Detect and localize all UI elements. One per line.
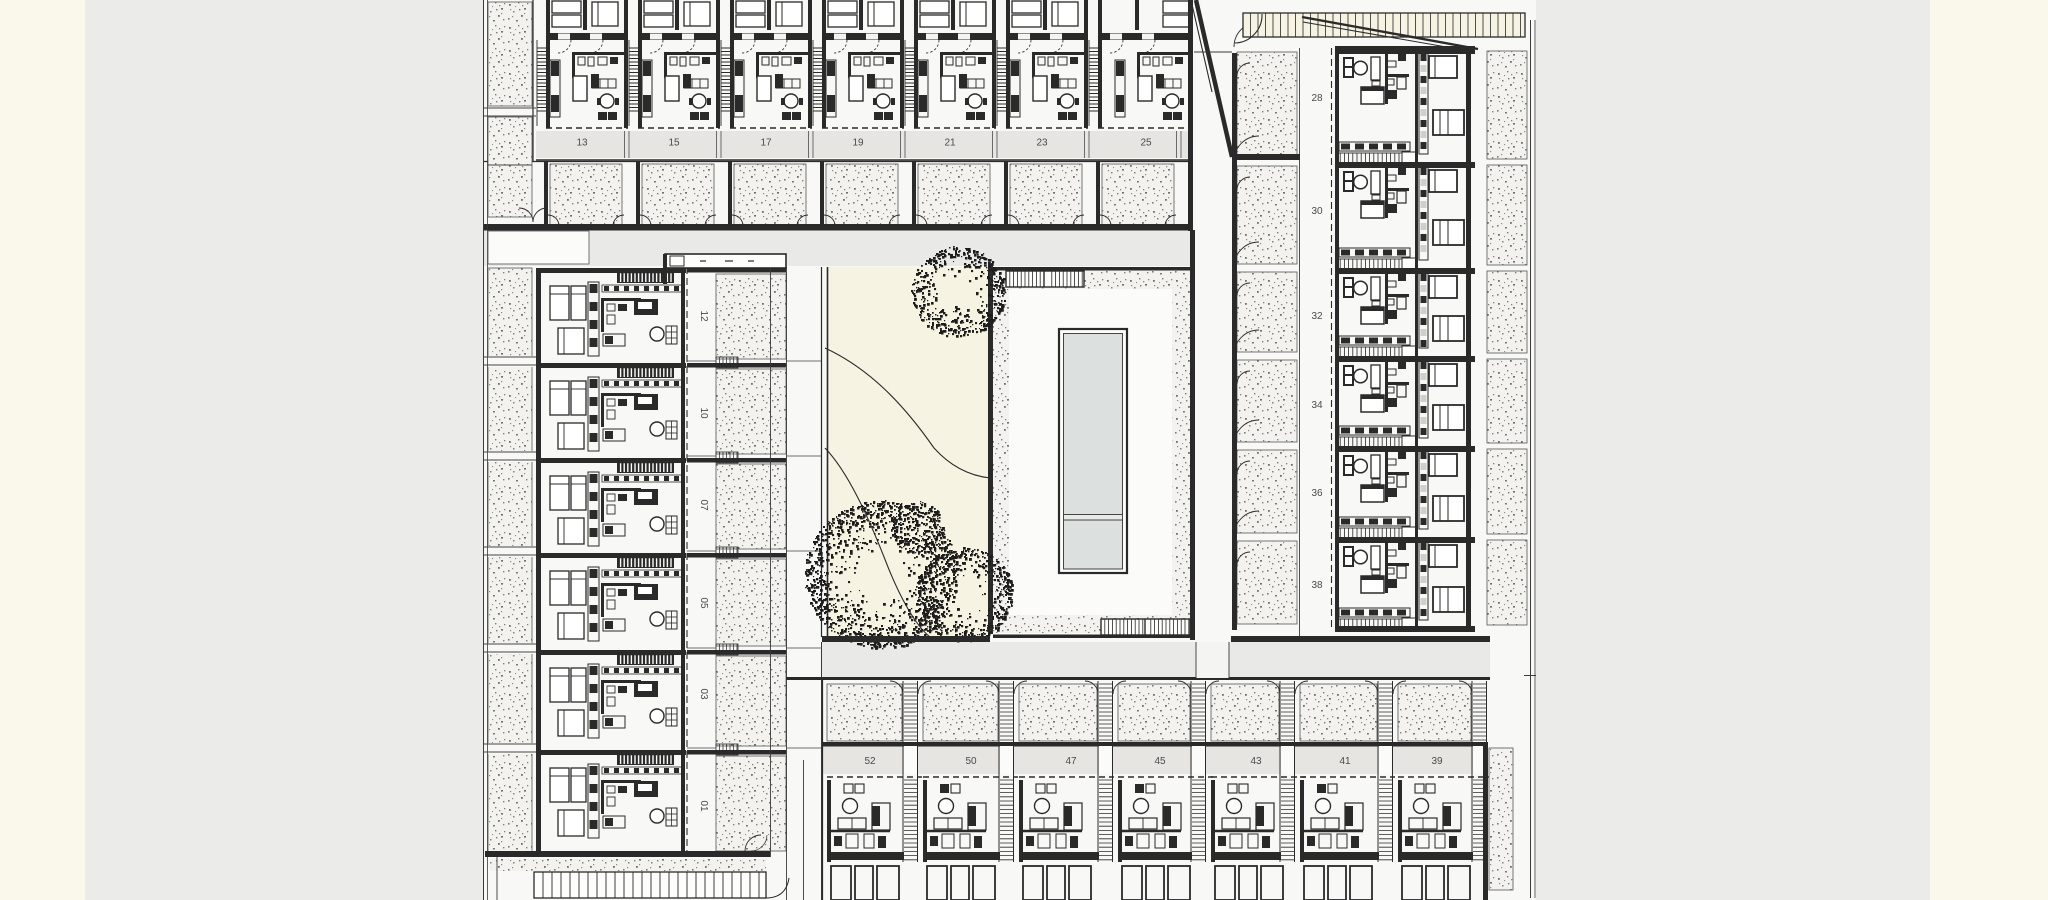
- svg-text:17: 17: [760, 138, 772, 149]
- svg-text:25: 25: [1140, 138, 1152, 149]
- svg-text:50: 50: [965, 756, 977, 767]
- svg-text:10: 10: [698, 407, 709, 419]
- svg-text:07: 07: [698, 499, 709, 511]
- svg-text:19: 19: [852, 138, 864, 149]
- svg-text:38: 38: [1311, 580, 1323, 591]
- svg-text:36: 36: [1311, 488, 1323, 499]
- svg-text:12: 12: [698, 310, 709, 322]
- svg-text:39: 39: [1431, 756, 1443, 767]
- svg-text:05: 05: [698, 597, 709, 609]
- svg-text:28: 28: [1311, 93, 1323, 104]
- svg-text:43: 43: [1250, 756, 1262, 767]
- svg-text:30: 30: [1311, 206, 1323, 217]
- svg-text:15: 15: [668, 138, 680, 149]
- svg-text:03: 03: [698, 688, 709, 700]
- svg-text:52: 52: [864, 756, 876, 767]
- svg-text:41: 41: [1339, 756, 1351, 767]
- svg-text:45: 45: [1154, 756, 1166, 767]
- svg-text:23: 23: [1036, 138, 1048, 149]
- svg-text:21: 21: [944, 138, 956, 149]
- svg-text:47: 47: [1065, 756, 1077, 767]
- svg-text:13: 13: [576, 138, 588, 149]
- svg-text:34: 34: [1311, 400, 1323, 411]
- svg-text:01: 01: [698, 800, 709, 812]
- svg-text:32: 32: [1311, 311, 1323, 322]
